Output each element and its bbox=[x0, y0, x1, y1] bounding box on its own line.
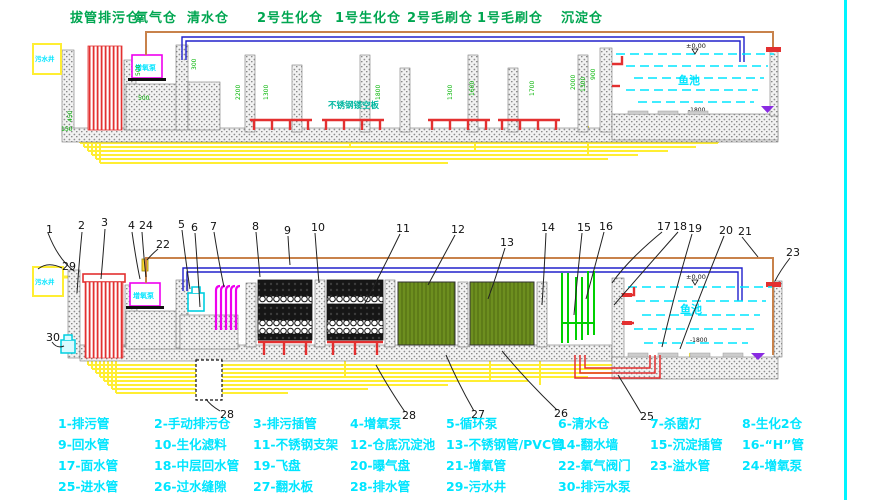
dim-2000: 2000 bbox=[570, 75, 577, 90]
callout-10: 10 bbox=[311, 221, 325, 234]
chamber-label-oxygen: 氧气仓 bbox=[135, 7, 177, 26]
legend-item-7: 7-杀菌灯 bbox=[650, 413, 742, 434]
chamber-label-brush2: 2号毛刷仓 bbox=[407, 7, 473, 26]
pump-shelf bbox=[128, 78, 166, 81]
legend-item-15: 15-沉淀插管 bbox=[650, 434, 742, 455]
chamber-label-bio2: 2号生化仓 bbox=[257, 7, 323, 26]
diffuser-plates-top bbox=[628, 111, 708, 115]
oxygen-pipe-top bbox=[146, 32, 773, 55]
legend-item-8: 8-生化2仓 bbox=[742, 413, 828, 434]
wall bbox=[62, 50, 74, 136]
legend-item-27: 27-翻水板 bbox=[253, 476, 350, 497]
pond-right-wall bbox=[770, 48, 778, 116]
callout-30: 30 bbox=[46, 331, 60, 344]
dim-1300a: 1300 bbox=[263, 85, 270, 100]
fish-pond-top: 鱼池 ±0.00 -1800 bbox=[612, 42, 774, 115]
dim-900: 900 bbox=[590, 68, 597, 80]
callout-19: 19 bbox=[688, 222, 702, 235]
callout-21: 21 bbox=[738, 225, 752, 238]
callout-18: 18 bbox=[673, 220, 687, 233]
sewage-well-bottom: 污水井 bbox=[33, 267, 63, 296]
legend-item-28: 28-排水管 bbox=[350, 476, 446, 497]
callout-16: 16 bbox=[599, 220, 613, 233]
legend-item-18: 18-中层回水管 bbox=[154, 455, 253, 476]
aerator-pump-label: 增氧泵 bbox=[133, 291, 154, 300]
h-pipe bbox=[562, 271, 594, 343]
dim-1700: 1700 bbox=[529, 81, 536, 96]
pond-floor bbox=[612, 114, 778, 140]
legend-item-14: 14-翻水墙 bbox=[558, 434, 650, 455]
dim-1300b: 1300 bbox=[447, 85, 454, 100]
dim-1800: 1800 bbox=[375, 85, 382, 100]
stainless-plate-label: 不锈钢镂空板 bbox=[328, 100, 380, 111]
callout-13: 13 bbox=[500, 236, 514, 249]
legend-item-11: 11-不锈钢支架 bbox=[253, 434, 350, 455]
legend-item-3: 3-排污插管 bbox=[253, 413, 350, 434]
legend-item-6: 6-清水仓 bbox=[558, 413, 650, 434]
legend-item-16: 16-“H”管 bbox=[742, 434, 828, 455]
callout-15: 15 bbox=[577, 221, 591, 234]
dim-2200: 2200 bbox=[235, 85, 242, 100]
callout-6: 6 bbox=[191, 221, 198, 234]
legend-item-1: 1-排污管 bbox=[58, 413, 154, 434]
chamber-label-bio1: 1号生化仓 bbox=[335, 7, 401, 26]
legend-item-21: 21-增氧管 bbox=[446, 455, 558, 476]
top-section-drawing: 污水井 增氧泵 不锈钢镂空板 bbox=[28, 28, 828, 200]
callout-4: 4 bbox=[128, 219, 135, 232]
callout-5: 5 bbox=[178, 218, 185, 231]
callout-1: 1 bbox=[46, 223, 53, 236]
sheet-border-line bbox=[844, 0, 847, 500]
chamber-label-clean: 清水仓 bbox=[187, 7, 229, 26]
chamber-label-drain: 拔管排污仓 bbox=[70, 7, 140, 26]
legend-item-26: 26-过水缝隙 bbox=[154, 476, 253, 497]
callout-24: 24 bbox=[139, 219, 153, 232]
blue-pipe-top bbox=[182, 37, 744, 62]
callout-22: 22 bbox=[156, 238, 170, 251]
legend-item-9: 9-回水管 bbox=[58, 434, 154, 455]
callout-7: 7 bbox=[210, 220, 217, 233]
sewage-well-label: 污水井 bbox=[35, 277, 55, 286]
legend-item-17: 17-面水管 bbox=[58, 455, 154, 476]
pond-right-wall bbox=[774, 281, 782, 357]
legend-item-4: 4-增氧泵 bbox=[350, 413, 446, 434]
pond-left-wall bbox=[600, 48, 612, 132]
callout-23: 23 bbox=[786, 246, 800, 259]
aerator-pump-top: 增氧泵 bbox=[128, 55, 166, 81]
legend-item-23: 23-溢水管 bbox=[650, 455, 742, 476]
fish-pond-label: 鱼池 bbox=[678, 73, 700, 87]
callout-29: 29 bbox=[62, 260, 76, 273]
callout-12: 12 bbox=[451, 223, 465, 236]
legend-item-12: 12-仓底沉淀池 bbox=[350, 434, 446, 455]
dim-1600: 1600 bbox=[469, 81, 476, 96]
callout-14: 14 bbox=[541, 221, 555, 234]
callout-11: 11 bbox=[396, 222, 410, 235]
callout-17: 17 bbox=[657, 220, 671, 233]
legend-item-24: 24-增氧泵 bbox=[742, 455, 828, 476]
aerator-pump-bottom: 增氧泵 bbox=[126, 283, 164, 309]
sewage-well-label: 污水井 bbox=[35, 54, 55, 63]
pond-left-wall bbox=[612, 278, 624, 358]
legend-item-19: 19-飞盘 bbox=[253, 455, 350, 476]
sewage-well-top: 污水井 bbox=[33, 44, 61, 74]
dim-500v: 500 bbox=[135, 64, 142, 76]
dim-500h: 500 bbox=[138, 95, 150, 102]
legend-item-30: 30-排污水泵 bbox=[558, 476, 650, 497]
legend-item-13: 13-不锈钢管/PVC管 bbox=[446, 434, 558, 455]
legend-item-25: 25-进水管 bbox=[58, 476, 154, 497]
legend-item-5: 5-循环泵 bbox=[446, 413, 558, 434]
drain-insert-pipes-top bbox=[88, 46, 122, 130]
drawing-sheet: 拔管排污仓 氧气仓 清水仓 2号生化仓 1号生化仓 2号毛刷仓 1号毛刷仓 沉淀… bbox=[0, 0, 882, 500]
legend-item-20: 20-曝气盘 bbox=[350, 455, 446, 476]
concrete-structure-top bbox=[62, 45, 778, 142]
callout-9: 9 bbox=[284, 224, 291, 237]
dim-450: 450 bbox=[67, 110, 74, 122]
brush-block-1 bbox=[470, 282, 534, 345]
fish-pond-bottom: 鱼池 ±0.00 -1800 bbox=[622, 273, 772, 360]
fish-pond-label: 鱼池 bbox=[680, 302, 702, 316]
pump-shelf bbox=[126, 306, 164, 309]
bottom-section-drawing: 污水井 增氧泵 bbox=[28, 215, 828, 425]
callout-2: 2 bbox=[78, 219, 85, 232]
legend-item-2: 2-手动排污仓 bbox=[154, 413, 253, 434]
legend: 1-排污管 2-手动排污仓 3-排污插管 4-增氧泵 5-循环泵 6-清水仓 7… bbox=[58, 413, 828, 497]
diffuser-plates-bottom bbox=[628, 353, 743, 357]
circulation-pump bbox=[188, 287, 204, 311]
dim-150: 150 bbox=[61, 126, 73, 133]
legend-item-10: 10-生化滤料 bbox=[154, 434, 253, 455]
dim-1300c: 1300 bbox=[580, 77, 587, 92]
chamber-label-settling: 沉淀仓 bbox=[561, 7, 603, 26]
biofilter-block-1 bbox=[258, 280, 312, 340]
biofilter-block-2 bbox=[327, 280, 383, 340]
callout-8: 8 bbox=[252, 220, 259, 233]
brush-block-2 bbox=[398, 282, 455, 345]
overflow-fitting-top bbox=[766, 47, 781, 52]
surface-water-pipe-top bbox=[612, 56, 622, 86]
callout-20: 20 bbox=[719, 224, 733, 237]
legend-item-29: 29-污水井 bbox=[446, 476, 558, 497]
dim-300: 300 bbox=[191, 58, 198, 70]
drain-pipe-box bbox=[196, 360, 222, 400]
bottom-level-label: -1800 bbox=[690, 337, 708, 344]
callout-3: 3 bbox=[101, 216, 108, 229]
chamber-label-brush1: 1号毛刷仓 bbox=[477, 7, 543, 26]
drain-insert-pipes-bottom bbox=[83, 274, 125, 358]
legend-item-22: 22-氧气阀门 bbox=[558, 455, 650, 476]
